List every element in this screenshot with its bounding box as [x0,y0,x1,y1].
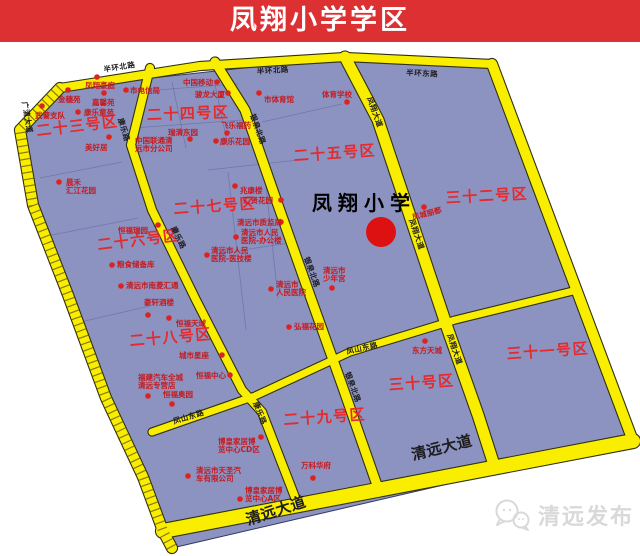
page: 凤翔小学学区 二十三号区二十四号区二十五号区三十二号区二十七号区二十六号区二十八… [0,0,640,556]
poi-dot [225,90,231,96]
poi-label: 美好居 [85,142,108,152]
poi-label: 中国移动 [183,77,213,87]
school-district-map: 二十三号区二十四号区二十五号区三十二号区二十七号区二十六号区二十八号区二十九号区… [0,0,640,556]
poi-dot [118,283,124,289]
poi-dot [204,252,210,258]
poi-dot [185,473,191,479]
poi-label: 凤翔豪庭 [85,80,115,90]
poi-dot [286,324,292,330]
poi-label: 恒福天域 [176,318,206,328]
poi-dot [39,103,45,109]
poi-dot [237,496,243,502]
poi-label: 恒福瑞园 [118,225,148,235]
poi-label: 武警支队 [35,110,65,120]
poi-label: 弘福花园 [294,321,324,331]
poi-dot [155,222,161,228]
poi-label: 博皇家居博览中心A区 [245,485,283,503]
poi-dot [213,138,219,144]
poi-dot [166,315,172,321]
poi-dot [145,312,151,318]
poi-label: 清远市人民医院-办公楼 [241,227,282,245]
poi-label: 粮食储备库 [117,259,155,269]
poi-label: 金穗苑 [57,94,81,104]
poi-label: 万科华府 [300,460,331,470]
poi-label: 清远市南菱汇通 [126,280,179,290]
poi-label: 恒福中心 [196,370,226,380]
poi-dot [232,183,238,189]
poi-dot [233,234,239,240]
poi-dot [56,179,62,185]
poi-label: 市体育馆 [264,94,294,104]
watermark: 清远发布 [492,498,634,532]
poi-dot [101,90,107,96]
poi-dot [268,286,274,292]
poi-label: 中国联通清远市分公司 [135,135,173,153]
poi-dot [224,130,230,136]
poi-label: 博皇家居博览中心CD区 [218,436,260,454]
poi-label: 清远市质监局 [237,217,282,227]
poi-label: 汇贤花园 [243,195,273,205]
poi-label: 东方天城 [412,345,442,355]
poi-label: 恒福奥园 [163,389,193,399]
poi-label: 康乐童苑 [84,107,114,117]
poi-label: 康乐花园 [220,136,250,146]
poi-dot [310,475,316,481]
poi-dot [109,262,115,268]
poi-dot [258,434,264,440]
poi-dot [106,134,112,140]
poi-dot [145,393,151,399]
school-name-label: 凤翔小学 [312,191,416,215]
poi-dot [65,87,71,93]
poi-dot [219,352,225,358]
wechat-bubbles-icon [492,498,532,532]
poi-dot [256,90,262,96]
poi-label: 兆康楼 [240,185,263,195]
zone-label: 二十四号区 [147,103,230,124]
poi-label: 清远市少年宫 [322,265,346,283]
poi-label: 清远市人民医院-医技楼 [211,245,252,263]
poi-dot [75,109,81,115]
school-marker-dot [366,217,396,247]
poi-label: 嘉馨苑 [91,97,115,107]
poi-dot [214,79,220,85]
poi-dot [94,74,100,80]
poi-label: 市电信局 [130,85,160,95]
poi-dot [344,99,350,105]
poi-dot [187,136,193,142]
road-label: 半环东路 [406,67,438,79]
poi-label: 瑞清东园 [168,127,198,137]
poi-dot [227,372,233,378]
poi-label: 飞乐福药 [221,120,251,130]
poi-dot [278,197,284,203]
poi-dot [123,87,129,93]
poi-dot [422,338,428,344]
poi-dot [329,285,335,291]
poi-dot [169,401,175,407]
poi-label: 豪轩酒楼 [144,297,174,307]
watermark-text: 清远发布 [538,499,634,531]
poi-label: 体育学校 [322,89,352,99]
poi-label: 城市星座 [179,350,209,360]
poi-label: 骏龙大厦 [195,89,225,99]
